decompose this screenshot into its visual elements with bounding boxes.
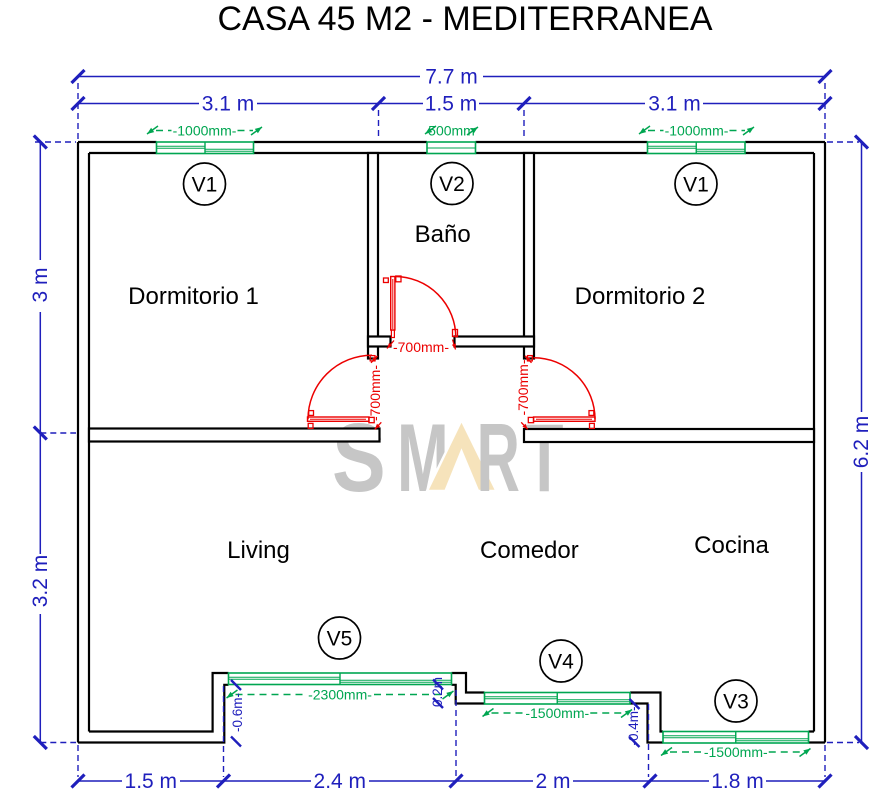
svg-text:V1: V1 (683, 174, 709, 197)
svg-text:7.7 m: 7.7 m (425, 66, 478, 89)
svg-text:3.1 m: 3.1 m (648, 93, 701, 116)
svg-text:CASA 45 M2 - MEDITERRANEA: CASA 45 M2 - MEDITERRANEA (217, 0, 712, 38)
svg-text:-1000mm-: -1000mm- (665, 123, 729, 139)
svg-text:V2: V2 (439, 173, 465, 196)
svg-text:3.1 m: 3.1 m (202, 93, 255, 116)
svg-text:2 m: 2 m (535, 770, 570, 793)
svg-text:2.4 m: 2.4 m (314, 770, 367, 793)
svg-text:-700mm-: -700mm- (515, 359, 531, 415)
svg-text:Dormitorio 2: Dormitorio 2 (575, 283, 706, 310)
svg-text:V1: V1 (192, 174, 218, 197)
svg-text:-1000mm-: -1000mm- (173, 123, 237, 139)
svg-text:-1500mm-: -1500mm- (704, 744, 768, 760)
svg-text:R: R (477, 404, 520, 512)
svg-text:1.5 m: 1.5 m (125, 770, 178, 793)
svg-text:-0.6m-: -0.6m- (230, 693, 245, 732)
svg-text:-700mm-: -700mm- (367, 365, 383, 421)
svg-text:500mm: 500mm (428, 123, 475, 139)
svg-text:M: M (397, 404, 449, 512)
svg-text:3.2 m: 3.2 m (29, 555, 52, 608)
svg-text:Baño: Baño (415, 221, 471, 248)
svg-text:0.2m: 0.2m (430, 677, 445, 707)
svg-text:-0.4m-: -0.4m- (626, 706, 641, 745)
svg-text:V5: V5 (327, 628, 353, 651)
svg-text:1.5 m: 1.5 m (425, 93, 478, 116)
svg-text:Living: Living (227, 537, 290, 564)
svg-text:-700mm-: -700mm- (393, 339, 449, 355)
svg-text:6.2 m: 6.2 m (850, 416, 873, 469)
svg-text:Dormitorio 1: Dormitorio 1 (128, 283, 259, 310)
svg-text:-2300mm-: -2300mm- (308, 687, 372, 703)
svg-text:Comedor: Comedor (480, 537, 579, 564)
svg-text:V3: V3 (723, 691, 749, 714)
svg-text:Cocina: Cocina (694, 532, 769, 559)
svg-text:V4: V4 (548, 651, 574, 674)
svg-text:1.8 m: 1.8 m (711, 770, 764, 793)
svg-text:-1500mm-: -1500mm- (525, 705, 589, 721)
svg-text:3 m: 3 m (29, 267, 52, 302)
